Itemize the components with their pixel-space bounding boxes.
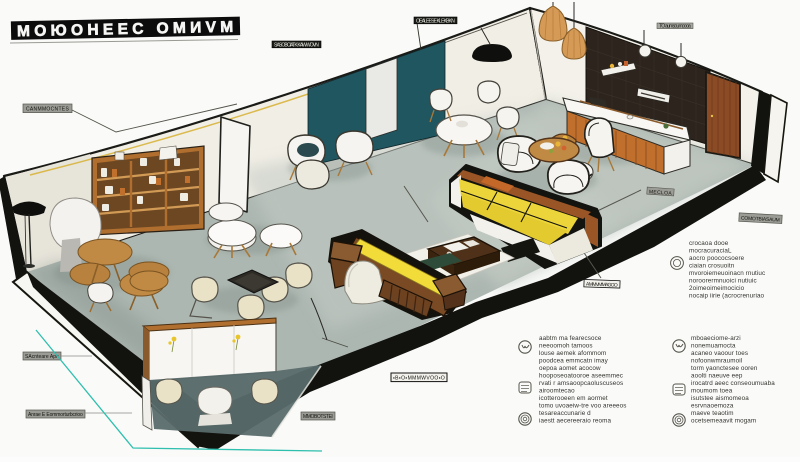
svg-text:nofoonwmraumoil: nofoonwmraumoil <box>691 358 742 365</box>
svg-text:SAcnteare Apn: SAcnteare Apn <box>25 354 59 360</box>
svg-text:maeve teaotim: maeve teaotim <box>691 410 734 417</box>
svg-text:acaneo vaoour toes: acaneo vaoour toes <box>691 350 748 357</box>
svg-text:aabtm ma fearecsoce: aabtm ma fearecsoce <box>539 335 602 342</box>
svg-text:neeoomoh tamoos: neeoomoh tamoos <box>539 343 593 350</box>
svg-text:Anrae E Eommorturbcrioo: Anrae E Eommorturbcrioo <box>28 412 83 418</box>
svg-text:aoolti naeuve eep: aoolti naeuve eep <box>691 373 743 380</box>
svg-text:MMOBOTSTEI: MMOBOTSTEI <box>303 414 333 420</box>
svg-text:▪B▪O▪MMMWVOO▪O: ▪B▪O▪MMMWVOO▪O <box>393 376 445 382</box>
svg-text:hooposeoatooroe aseemmec: hooposeoatooroe aseemmec <box>539 373 623 380</box>
svg-text:airoomtecao: airoomtecao <box>539 388 575 395</box>
svg-text:aocro poococsoere: aocro poococsoere <box>689 255 745 262</box>
svg-text:moumom toea: moumom toea <box>691 388 733 395</box>
svg-text:noroorermnuoici nutiuic: noroorermnuoici nutiuic <box>689 278 757 285</box>
svg-text:ciaian crosuoitn: ciaian crosuoitn <box>689 263 735 270</box>
svg-text:iaestt aecereeraio reoma: iaestt aecereeraio reoma <box>539 418 611 425</box>
svg-text:oepoa aomet acocow: oepoa aomet acocow <box>539 365 601 372</box>
svg-text:poodcea emmcatn imay: poodcea emmcatn imay <box>539 358 609 365</box>
svg-text:crocaoa dooe: crocaoa dooe <box>689 240 729 247</box>
svg-text:ocetsemeaavit mogam: ocetsemeaavit mogam <box>691 418 756 425</box>
svg-text:TO aumsoumoooa: TO aumsoumoooa <box>659 24 691 30</box>
svg-text:mvoroiemeuoinacn rnutiuc: mvoroiemeuoinacn rnutiuc <box>689 270 765 277</box>
svg-text:louse aemek afommom: louse aemek afommom <box>539 350 606 357</box>
svg-text:esrvnaoemoza: esrvnaoemoza <box>691 403 734 410</box>
svg-text:rvati r amsaoopcaoluscuseos: rvati r amsaoopcaoluscuseos <box>539 380 623 387</box>
svg-text:tomo uvoaeiw-tre voo areeeos: tomo uvoaeiw-tre voo areeeos <box>539 403 627 410</box>
svg-text:mocracuraciaL: mocracuraciaL <box>689 248 732 255</box>
svg-text:SASOBCIATK KAWWOVN: SASOBCIATK KAWWOVN <box>274 43 319 49</box>
svg-text:torm yaonctesee ooren: torm yaonctesee ooren <box>691 365 758 372</box>
svg-text:nocaip iirie (acrocrenuriao: nocaip iirie (acrocrenuriao <box>689 293 765 300</box>
svg-text:2oimeoimeimocicio: 2oimeoimeimocicio <box>689 285 745 292</box>
svg-text:icotterooeen em aormet: icotterooeen em aormet <box>539 395 608 402</box>
svg-text:A MMVMMAGOO: A MMVMMAGOO <box>586 282 618 289</box>
svg-text:mboaeciome-arzi: mboaeciome-arzi <box>691 335 741 342</box>
svg-text:isutstee aismomeoa: isutstee aismomeoa <box>691 395 749 402</box>
svg-text:nonemuamocta: nonemuamocta <box>691 343 736 350</box>
svg-text:irocatrd aeec conseoumuaba: irocatrd aeec conseoumuaba <box>691 380 775 387</box>
svg-text:OEALEESE KLEKBKN: OEALEESE KLEKBKN <box>416 19 455 25</box>
svg-text:tesareaccunarie d: tesareaccunarie d <box>539 410 591 417</box>
svg-text:CANMMOCNTES: CANMMOCNTES <box>26 107 69 113</box>
